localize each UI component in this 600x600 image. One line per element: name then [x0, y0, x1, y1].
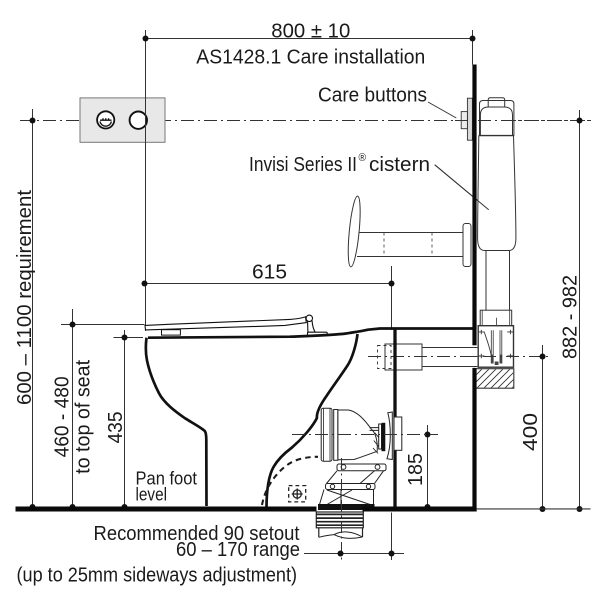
svg-text:60 – 170 range: 60 – 170 range — [176, 538, 300, 561]
svg-text:cistern: cistern — [369, 153, 430, 176]
svg-text:Care buttons: Care buttons — [318, 84, 427, 107]
svg-text:level: level — [136, 484, 168, 505]
svg-text:615: 615 — [252, 261, 287, 284]
svg-text:600 – 1100 requirement: 600 – 1100 requirement — [13, 190, 36, 405]
svg-text:AS1428.1 Care installation: AS1428.1 Care installation — [196, 45, 425, 68]
svg-text:(up to 25mm sideways adjustmen: (up to 25mm sideways adjustment) — [17, 564, 298, 587]
svg-text:460 - 480: 460 - 480 — [51, 376, 74, 457]
svg-text:800 ± 10: 800 ± 10 — [271, 20, 350, 43]
svg-text:185: 185 — [404, 453, 427, 486]
svg-text:Invisi Series II: Invisi Series II — [249, 153, 357, 176]
svg-text:®: ® — [359, 152, 367, 164]
svg-text:882 - 982: 882 - 982 — [559, 275, 582, 359]
svg-text:to top of seat: to top of seat — [72, 360, 95, 474]
svg-text:435: 435 — [104, 412, 127, 444]
svg-text:400: 400 — [519, 413, 542, 451]
